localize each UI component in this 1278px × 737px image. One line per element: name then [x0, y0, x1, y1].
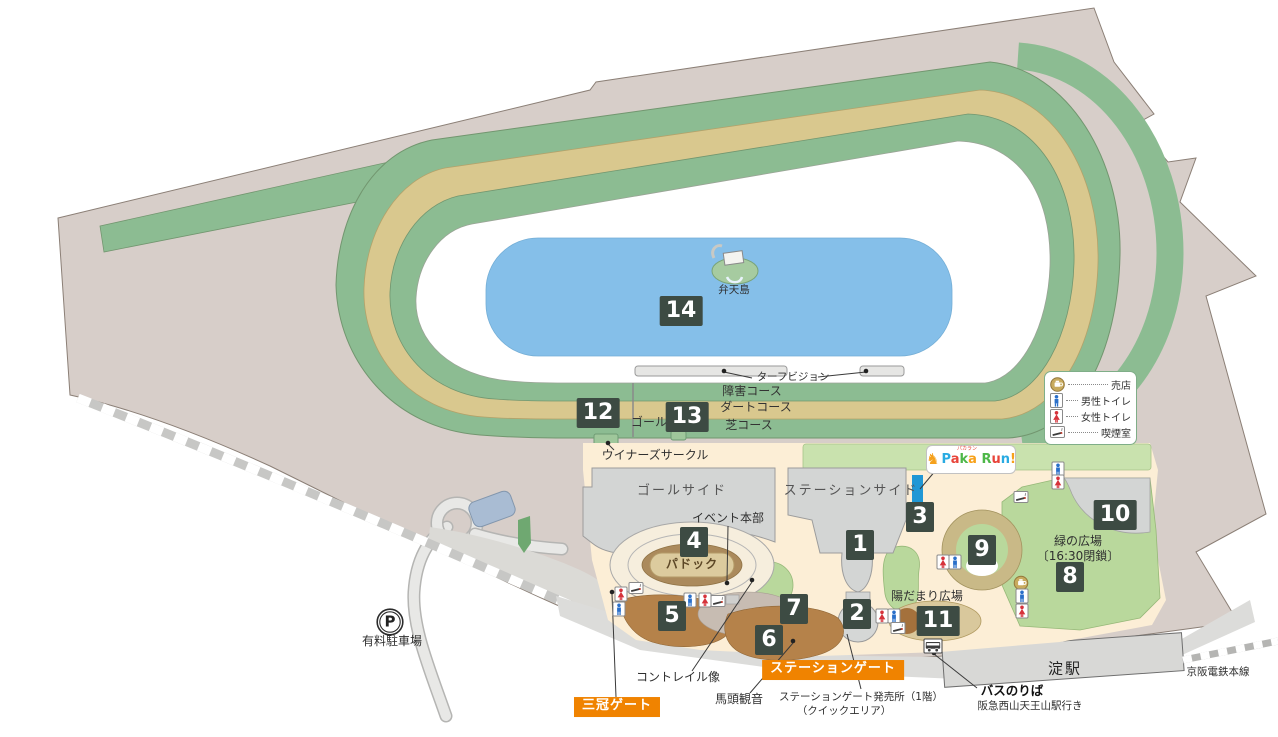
legend-label: 男性トイレ — [1081, 393, 1131, 408]
female-toilet-icon — [937, 555, 949, 569]
female-toilet-icon — [1016, 604, 1028, 618]
legend-label: 女性トイレ — [1081, 409, 1131, 424]
smoking-room-icon — [629, 583, 643, 594]
female-toilet-icon — [876, 609, 888, 623]
male-toilet-icon — [684, 593, 696, 607]
male-toilet-icon — [613, 602, 625, 616]
shop-icon — [1050, 377, 1065, 392]
male-toilet-icon — [1052, 462, 1064, 476]
bus-stop-icon — [924, 639, 942, 653]
pond — [486, 238, 952, 356]
male-toilet-icon — [888, 609, 900, 623]
pakarun-logo-sub: パカラン — [957, 447, 977, 452]
goal-marker — [671, 431, 686, 440]
escalator-bar — [912, 475, 923, 508]
legend-dotted-leader — [1066, 399, 1078, 401]
pakarun-logo-text: Paka Run! — [942, 453, 1016, 466]
legend-dotted-leader — [1066, 415, 1078, 417]
female-toilet-icon — [1052, 475, 1064, 489]
male-toilet-icon — [949, 555, 961, 569]
kiosk-bar — [726, 595, 739, 604]
pakarun-logo: ♞ Paka Run! パカラン — [926, 445, 1016, 474]
legend-row: 売店 — [1050, 376, 1131, 392]
male-toilet-icon — [1050, 393, 1063, 408]
female-toilet-icon — [615, 587, 627, 601]
racecourse-map: 売店男性トイレ女性トイレ喫煙室 ♞ Paka Run! パカラン ターフビジョン… — [0, 0, 1278, 737]
hidamari-terrace — [889, 601, 981, 641]
legend-row: 女性トイレ — [1050, 408, 1131, 424]
turf-vision-screens — [635, 366, 904, 376]
female-toilet-icon — [1050, 409, 1063, 424]
male-toilet-icon — [1016, 589, 1028, 603]
round-plaza — [942, 510, 1022, 590]
smoking-room-icon — [1050, 426, 1065, 438]
horse-icon: ♞ — [926, 452, 939, 467]
lawn-kidney — [883, 546, 919, 611]
legend-label: 喫煙室 — [1101, 425, 1131, 440]
terrace-east — [725, 606, 844, 660]
legend-dotted-leader — [1068, 431, 1098, 433]
legend-row: 喫煙室 — [1050, 424, 1131, 440]
map-canvas — [0, 0, 1278, 737]
smoking-room-icon — [891, 623, 905, 634]
female-toilet-icon — [699, 593, 711, 607]
smoking-room-icon — [1014, 492, 1028, 503]
legend-label: 売店 — [1111, 377, 1131, 392]
smoking-room-icon — [711, 596, 725, 607]
map-legend: 売店男性トイレ女性トイレ喫煙室 — [1044, 371, 1137, 445]
shop-icon — [1014, 576, 1028, 590]
legend-row: 男性トイレ — [1050, 392, 1131, 408]
parking-icon — [377, 609, 403, 635]
legend-dotted-leader — [1068, 383, 1108, 385]
station-gate-circle — [838, 602, 878, 642]
